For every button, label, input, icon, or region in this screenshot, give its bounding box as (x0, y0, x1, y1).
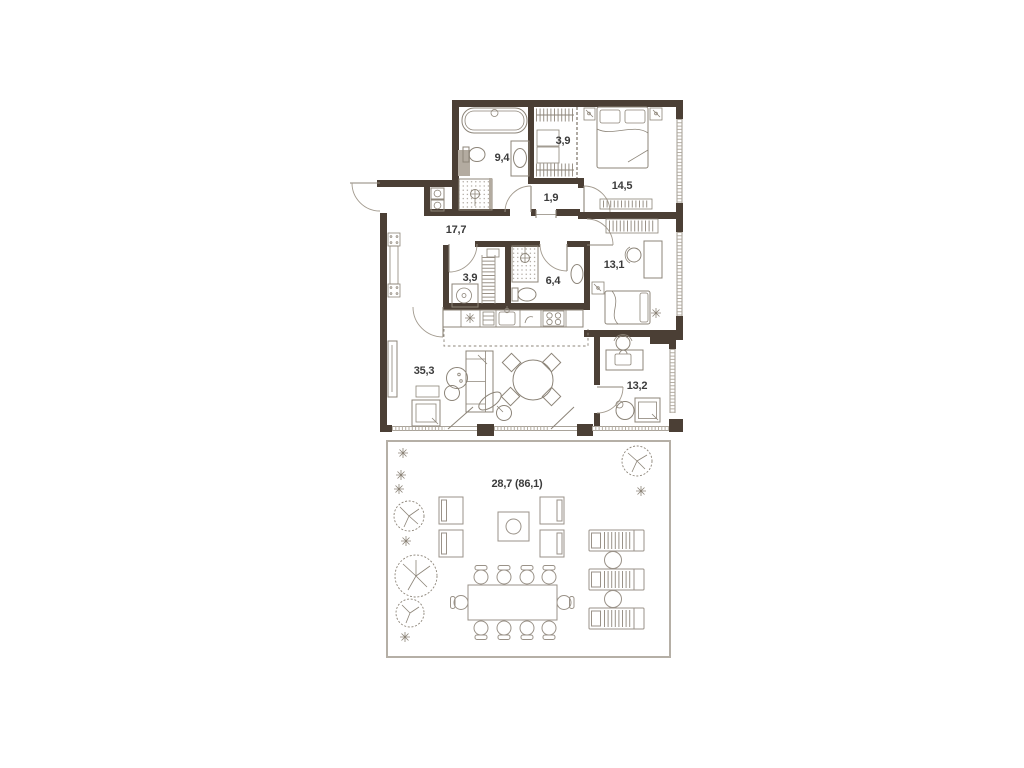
shower-icon-2 (512, 246, 538, 282)
room-label-hall: 1,9 (544, 192, 559, 204)
room-label-wardrobe: 3,9 (556, 135, 571, 147)
room-shower-room: 6,4 (512, 246, 583, 301)
coffee-tables-icon (445, 368, 468, 401)
bathtub-icon (462, 108, 527, 133)
kitchen-zone-boundary (444, 329, 588, 346)
room-label-laundry: 3,9 (463, 272, 478, 284)
room-label-bathroom: 9,4 (495, 152, 511, 164)
ladder-shelf-icon (482, 255, 495, 304)
sink-icon (499, 312, 515, 325)
closet-rack-icon (606, 219, 658, 233)
laundry-door-icon (449, 244, 477, 272)
window-living-left (392, 427, 445, 431)
room-label-entry-hall: 17,7 (446, 224, 467, 236)
room-label-bedroom: 14,5 (612, 180, 633, 192)
entry-door-icon (350, 183, 380, 211)
terrace-border (387, 441, 670, 657)
plant-icon-2 (476, 389, 512, 421)
window-cabinet-bottom (592, 427, 669, 431)
console-cabinet-icon (388, 233, 400, 297)
single-bed-icon (605, 291, 650, 324)
washbasin-icon-2 (571, 265, 583, 284)
room-hall: 1,9 (544, 192, 559, 204)
plant-icon (651, 308, 661, 318)
room-label-terrace: 28,7 (86,1) (491, 478, 543, 490)
room-label-shower-room: 6,4 (546, 275, 562, 287)
nightstand-lamp-icon (584, 108, 662, 120)
floor-plan-canvas: 28,7 (86,1) (0, 0, 1024, 768)
faucet-icon (525, 317, 533, 323)
room-bedroom-2: 13,1 (592, 219, 662, 324)
cabinet-door-icon (597, 387, 623, 413)
double-bed-icon (597, 107, 648, 168)
armchair-icon-2 (616, 398, 660, 422)
fridge-icon (465, 313, 475, 323)
nightstand-lamp-icon-2 (592, 282, 604, 294)
dining-table-icon (501, 353, 560, 405)
window-bedroom-2 (677, 232, 682, 316)
living-opening-icon (413, 307, 443, 337)
room-label-cabinet: 13,2 (627, 380, 648, 392)
room-cabinet: 13,2 (606, 335, 660, 422)
room-label-living-kitchen: 35,3 (414, 365, 435, 377)
floor-plan: 28,7 (86,1) (0, 0, 1024, 768)
window-living-mid (494, 427, 548, 431)
stove-icon (543, 311, 564, 326)
window-cabinet (670, 349, 675, 413)
room-wardrobe: 3,9 (536, 107, 577, 178)
shower-room-door-icon (540, 244, 567, 271)
washer-dryer-stack-icon (431, 188, 444, 211)
dishwasher-icon (483, 312, 494, 325)
room-bathroom: 9,4 (431, 108, 529, 211)
desk-icon (625, 241, 662, 278)
window-bedroom (677, 119, 682, 203)
room-laundry: 3,9 (452, 249, 499, 307)
wall-item-icon (487, 249, 499, 257)
desk-icon-2 (606, 335, 643, 370)
shower-icon (459, 178, 492, 210)
terrace: 28,7 (86,1) (387, 441, 670, 657)
bathroom-door-icon (505, 186, 531, 212)
armchair-icon (412, 386, 440, 426)
toilet-icon-2 (512, 288, 536, 301)
hall-door-marks-icon (536, 210, 556, 218)
room-label-bedroom-2: 13,1 (604, 259, 625, 271)
room-entry-hall: 17,7 (388, 224, 466, 297)
tv-console-icon (388, 341, 397, 397)
duct-shaft (458, 150, 470, 176)
washbasin-icon (511, 141, 529, 176)
room-bedroom: 14,5 (584, 107, 662, 209)
